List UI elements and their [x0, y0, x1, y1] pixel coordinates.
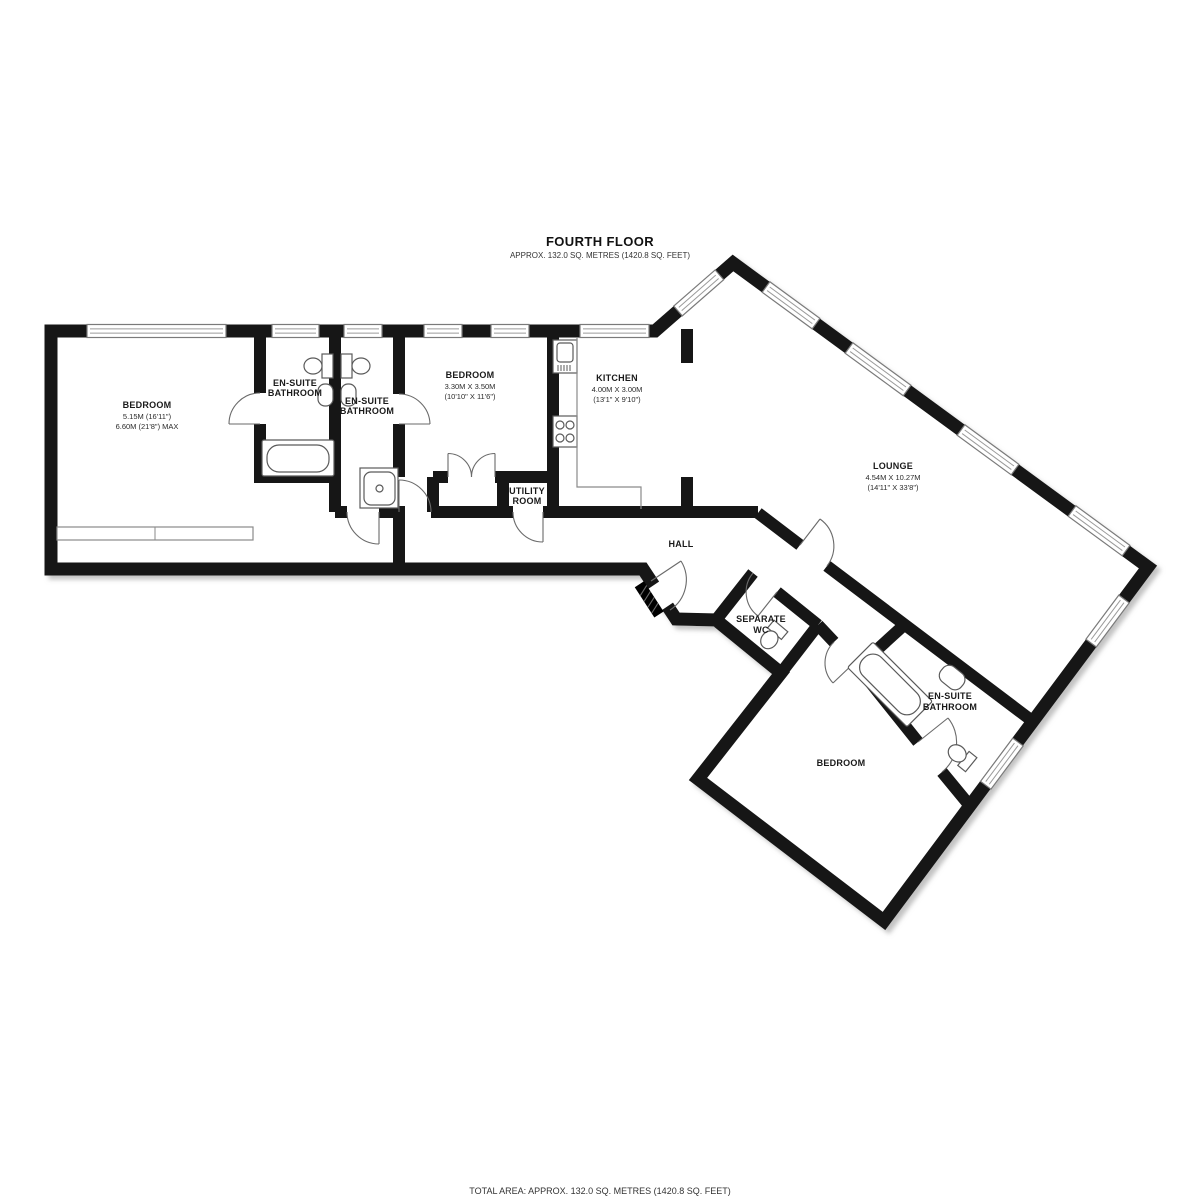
svg-text:4.00M X 3.00M: 4.00M X 3.00M — [592, 385, 643, 394]
window — [580, 325, 649, 338]
svg-text:BATHROOM: BATHROOM — [923, 702, 977, 712]
svg-text:ROOM: ROOM — [513, 496, 542, 506]
svg-text:5.15M (16'11"): 5.15M (16'11") — [123, 412, 172, 421]
window — [491, 325, 529, 338]
svg-text:EN-SUITE: EN-SUITE — [928, 691, 972, 701]
window — [344, 325, 382, 338]
svg-text:HALL: HALL — [669, 539, 694, 549]
wardrobe — [57, 527, 253, 540]
svg-text:BEDROOM: BEDROOM — [123, 400, 172, 410]
bathtub-icon — [262, 440, 334, 476]
room-label-ensuite-bottom: EN-SUITE BATHROOM — [923, 691, 977, 712]
svg-text:BEDROOM: BEDROOM — [446, 370, 495, 380]
svg-text:BEDROOM: BEDROOM — [817, 758, 866, 768]
svg-text:(14'11" X 33'8"): (14'11" X 33'8") — [868, 483, 919, 492]
room-label-ensuite-middle: EN-SUITE BATHROOM — [340, 396, 394, 416]
hob-icon — [553, 416, 577, 447]
room-label-bedroom-bottom: BEDROOM — [817, 758, 866, 768]
room-label-lounge: LOUNGE 4.54M X 10.27M (14'11" X 33'8") — [865, 461, 920, 492]
svg-text:UTILITY: UTILITY — [509, 486, 545, 496]
kitchen-sink-icon — [553, 340, 577, 373]
svg-text:KITCHEN: KITCHEN — [596, 373, 638, 383]
svg-text:(10'10" X 11'6"): (10'10" X 11'6") — [445, 392, 496, 401]
total-area-footer: TOTAL AREA: APPROX. 132.0 SQ. METRES (14… — [469, 1186, 730, 1196]
window — [424, 325, 462, 338]
outer-wall — [51, 263, 1148, 921]
floor-plan: FOURTH FLOOR APPROX. 132.0 SQ. METRES (1… — [0, 0, 1200, 1200]
svg-text:(13'1" X 9'10"): (13'1" X 9'10") — [593, 395, 641, 404]
svg-text:BATHROOM: BATHROOM — [268, 388, 322, 398]
svg-text:4.54M X 10.27M: 4.54M X 10.27M — [865, 473, 920, 482]
svg-text:BATHROOM: BATHROOM — [340, 406, 394, 416]
room-label-hall: HALL — [669, 539, 694, 549]
floorplan-page: FOURTH FLOOR APPROX. 132.0 SQ. METRES (1… — [0, 0, 1200, 1200]
svg-text:WC: WC — [753, 625, 769, 635]
page-subtitle: APPROX. 132.0 SQ. METRES (1420.8 SQ. FEE… — [510, 251, 690, 260]
shower-icon — [360, 468, 398, 508]
svg-text:LOUNGE: LOUNGE — [873, 461, 913, 471]
window — [272, 325, 319, 338]
room-label-utility: UTILITY ROOM — [509, 486, 545, 506]
window — [87, 325, 226, 338]
room-label-kitchen: KITCHEN 4.00M X 3.00M (13'1" X 9'10") — [592, 373, 643, 404]
svg-text:SEPARATE: SEPARATE — [736, 614, 786, 624]
walls — [51, 263, 1148, 921]
page-title: FOURTH FLOOR — [546, 234, 654, 249]
svg-text:EN-SUITE: EN-SUITE — [345, 396, 389, 406]
svg-text:3.30M X 3.50M: 3.30M X 3.50M — [445, 382, 496, 391]
room-label-ensuite-left: EN-SUITE BATHROOM — [268, 378, 322, 398]
room-label-bedroom-middle: BEDROOM 3.30M X 3.50M (10'10" X 11'6") — [445, 370, 496, 401]
svg-text:6.60M (21'8") MAX: 6.60M (21'8") MAX — [116, 422, 179, 431]
svg-text:EN-SUITE: EN-SUITE — [273, 378, 317, 388]
room-label-bedroom-left: BEDROOM 5.15M (16'11") 6.60M (21'8") MAX — [116, 400, 179, 431]
